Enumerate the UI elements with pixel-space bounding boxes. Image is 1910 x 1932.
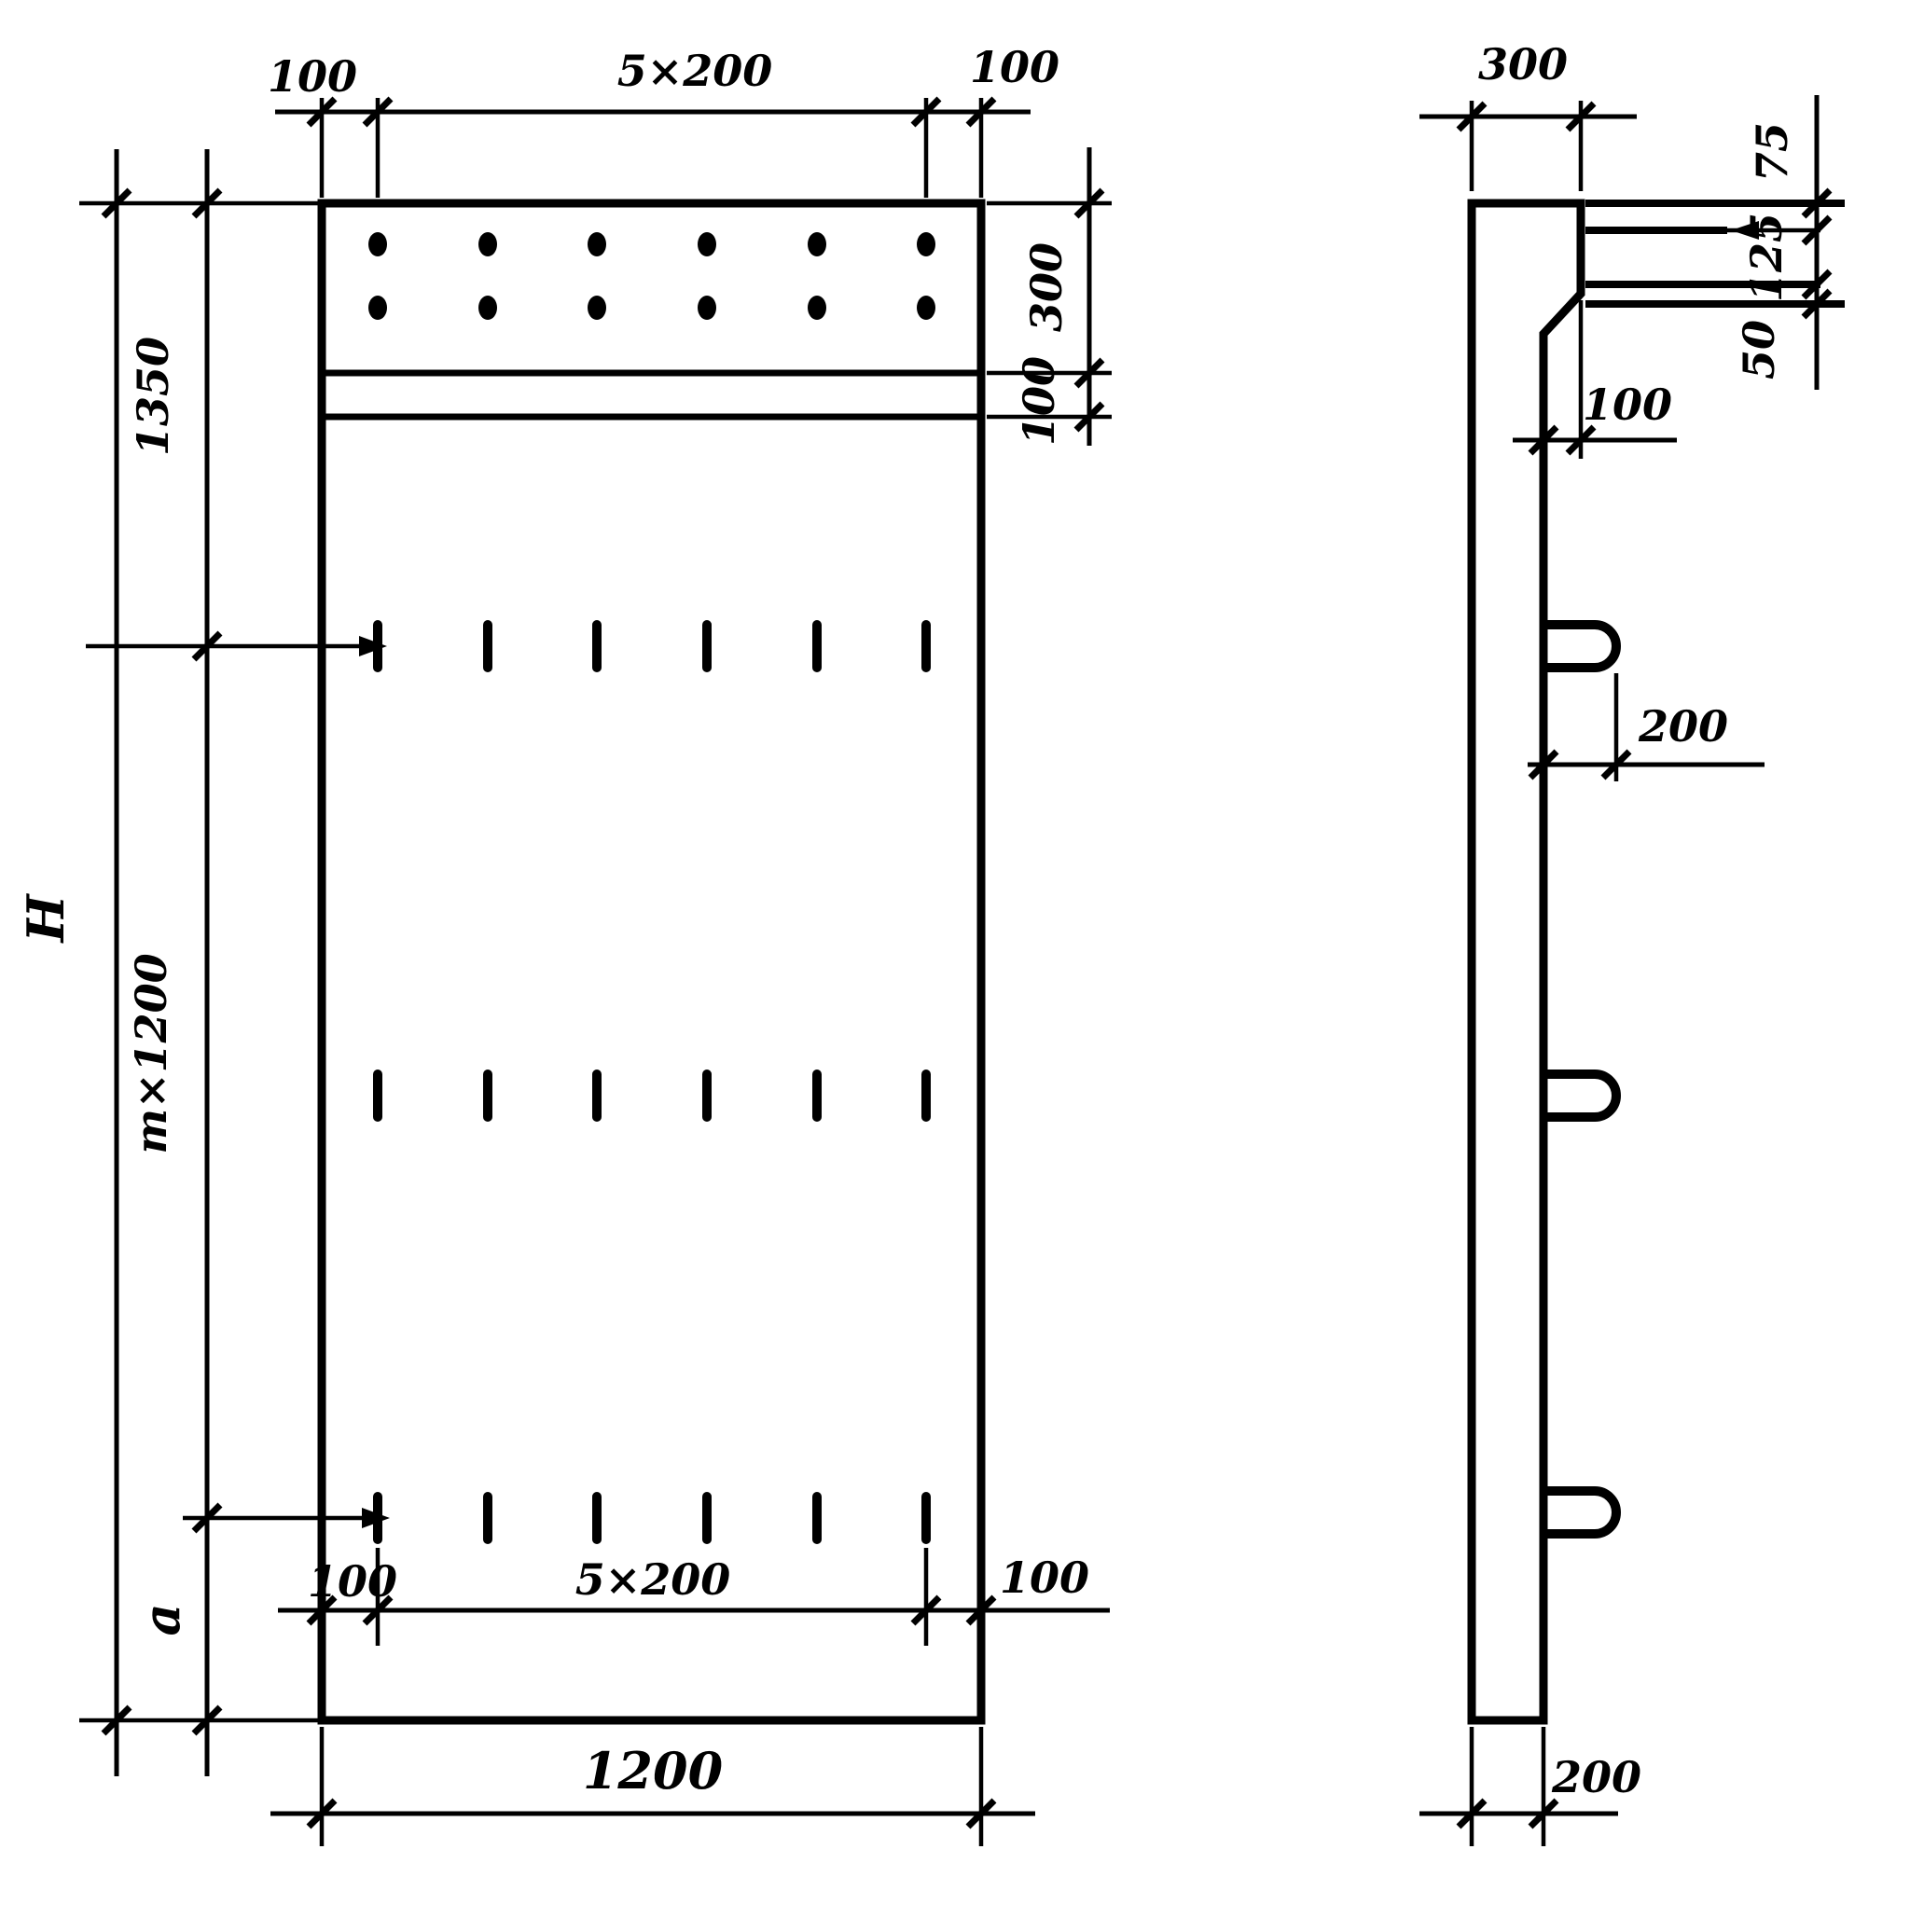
dim-loop-protrusion: 200 — [1528, 673, 1765, 781]
loop-dash-icon — [483, 1069, 492, 1122]
loop-dash-icon — [592, 1492, 602, 1544]
panel-outline — [322, 203, 981, 1720]
loop-dash-icon — [592, 620, 602, 672]
loop-dash-icon — [483, 1492, 492, 1544]
anchor-dot-icon — [478, 232, 497, 256]
loop-dash-icon — [812, 1492, 822, 1544]
dim-label-bottom-left-margin: 100 — [308, 1556, 397, 1607]
lifting-loop-icon — [1547, 1491, 1616, 1534]
dim-bottom-width: 1200 — [270, 1727, 1035, 1846]
technical-drawing: 100 5×200 100 300 100 H 1 — [0, 0, 1910, 1932]
dim-label-band-height: 300 — [1021, 242, 1072, 332]
side-view: 300 75 125 50 100 — [1419, 39, 1845, 1846]
anchor-dot-icon — [368, 232, 387, 256]
dim-side-step: 100 — [1513, 300, 1677, 459]
anchor-dot-icon — [698, 296, 716, 320]
lifting-loops — [1547, 625, 1616, 1534]
dim-side-bottom: 200 — [1419, 1727, 1641, 1846]
loop-dash-icon — [702, 1069, 712, 1122]
loop-dash-icon — [702, 1492, 712, 1544]
front-view: 100 5×200 100 300 100 H 1 — [16, 42, 1112, 1846]
anchor-dot-icon — [808, 296, 826, 320]
dim-label-bar-offset-2: 125 — [1741, 213, 1792, 302]
dim-side-top: 300 — [1419, 39, 1637, 191]
dim-label-top-to-first-row: 1350 — [128, 337, 178, 456]
dim-right-band: 300 100 — [987, 147, 1112, 446]
dim-label-top-right-margin: 100 — [970, 42, 1059, 92]
lifting-loop-icon — [1547, 1074, 1616, 1117]
loop-dash-icon — [592, 1069, 602, 1122]
dim-label-bar-offset-3: 50 — [1734, 320, 1784, 379]
dim-label-bottom-thickness: 200 — [1551, 1752, 1641, 1802]
dim-label-bottom-spacing: 5×200 — [575, 1554, 731, 1605]
dim-label-top-left-margin: 100 — [268, 51, 357, 102]
anchor-dot-icon — [808, 232, 826, 256]
drawing-page: 100 5×200 100 300 100 H 1 — [0, 0, 1910, 1932]
dim-label-step-depth: 100 — [1583, 379, 1672, 430]
loop-dash-icon — [812, 620, 822, 672]
dim-left: H 1350 m×1200 a — [16, 149, 390, 1776]
loop-dash-icon — [373, 1069, 382, 1122]
dim-label-bar-offset-1: 75 — [1747, 122, 1797, 182]
dim-label-width: 1200 — [583, 1741, 723, 1801]
dim-label-top-spacing: 5×200 — [617, 46, 773, 96]
loop-dash-icon — [483, 620, 492, 672]
dim-label-band-strip: 100 — [1014, 356, 1064, 446]
dim-label-loop-protrusion: 200 — [1638, 701, 1728, 752]
anchor-dot-icon — [368, 296, 387, 320]
anchor-dot-icon — [478, 296, 497, 320]
dim-label-top-thickness: 300 — [1478, 39, 1568, 90]
loop-dash-icon — [812, 1069, 822, 1122]
loop-dash-icon — [921, 1492, 931, 1544]
anchor-dot-icon — [588, 232, 606, 256]
anchor-dot-icon — [917, 232, 935, 256]
anchor-dot-icon — [588, 296, 606, 320]
loop-dash-icon — [702, 620, 712, 672]
dim-label-bottom-right-margin: 100 — [1000, 1552, 1089, 1603]
dim-side-right-stack: 75 125 50 — [1734, 95, 1830, 390]
loop-dash-icon — [921, 620, 931, 672]
loop-dash-icon — [921, 1069, 931, 1122]
anchor-dot-icon — [917, 296, 935, 320]
dim-label-total-height: H — [16, 893, 76, 945]
anchor-dots — [368, 232, 935, 320]
loop-dashes — [373, 620, 931, 1544]
dim-label-bottom-offset: a — [131, 1604, 191, 1636]
dim-label-row-spacing: m×1200 — [126, 953, 176, 1153]
dim-top: 100 5×200 100 — [268, 42, 1059, 198]
anchor-dot-icon — [698, 232, 716, 256]
lifting-loop-icon — [1547, 625, 1616, 668]
